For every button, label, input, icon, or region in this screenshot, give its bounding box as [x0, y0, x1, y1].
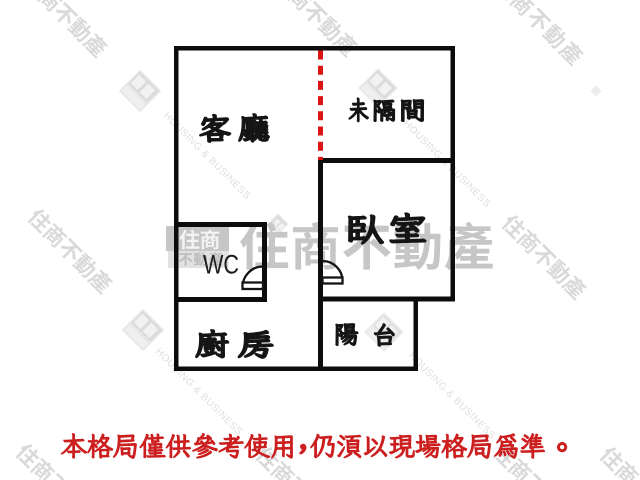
svg-text:WC: WC [203, 250, 239, 280]
